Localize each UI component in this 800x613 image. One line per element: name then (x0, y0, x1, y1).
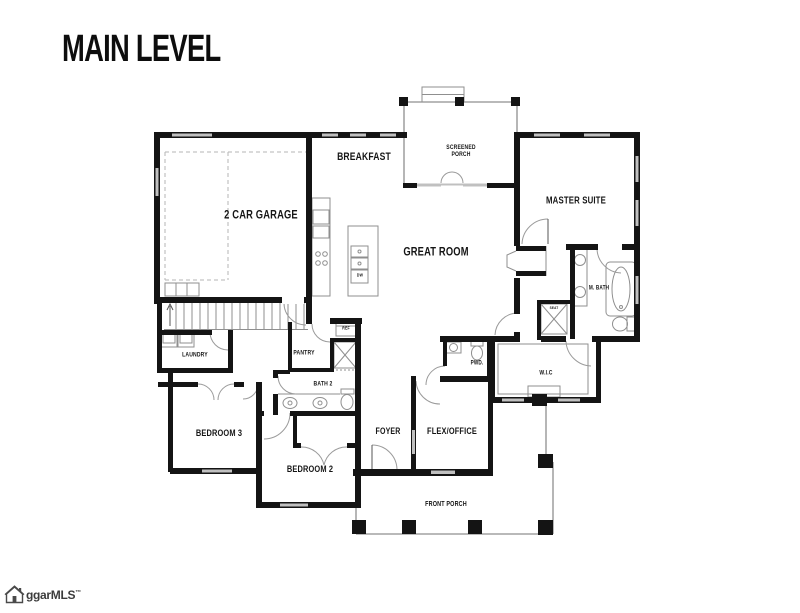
bedroom2-closet-door-right (324, 447, 347, 465)
room-label-master-bath: M. BATH (589, 286, 609, 293)
room-label-great-room: GREAT ROOM (403, 245, 468, 258)
bath2-door-swing (278, 376, 296, 394)
bath2-vanity (278, 394, 340, 409)
front-door-swing (372, 445, 397, 469)
trademark-symbol: ™ (75, 590, 81, 596)
room-label-bedroom2: BEDROOM 2 (287, 465, 333, 475)
house-icon (4, 585, 25, 604)
hall-door-swing (495, 313, 518, 335)
garage-storage (165, 283, 199, 296)
kitchen-counter (312, 198, 330, 296)
master-bath-vanity (574, 248, 587, 306)
bedroom2-door-swing (264, 413, 290, 439)
room-label-bedroom3: BEDROOM 3 (196, 429, 242, 439)
floor-plan-page: MAIN LEVEL (0, 0, 800, 613)
bath2-toilet (341, 389, 354, 410)
screened-porch-outline (404, 102, 517, 183)
powder-sink (446, 342, 461, 353)
fixture-label-shower-seat: SEAT (549, 306, 559, 310)
room-label-foyer: FOYER (376, 427, 401, 437)
room-label-master-suite: MASTER SUITE (546, 196, 606, 207)
staircase (164, 303, 308, 330)
room-label-pantry: PANTRY (293, 349, 314, 356)
master-door-swing (522, 219, 548, 244)
room-label-laundry: LAUNDRY (182, 351, 208, 358)
room-label-screened-porch: SCREENED PORCH (443, 144, 479, 158)
room-label-wic: W.I.C (539, 369, 552, 376)
garage-door-swing (284, 303, 306, 325)
room-label-breakfast: BREAKFAST (337, 151, 391, 163)
flex-door-swing (416, 381, 440, 404)
bedroom3-closet-door-left (198, 384, 214, 400)
porch-french-door-left (441, 172, 452, 183)
logo-text: ggarMLS™ (26, 588, 81, 602)
bedroom2-closet-door-left (301, 447, 324, 465)
room-label-garage: 2 CAR GARAGE (224, 208, 298, 221)
master-toilet (613, 317, 636, 331)
garage-door-gap (282, 296, 304, 304)
laundry-door-swing (210, 332, 228, 350)
bedroom3-door-swing (243, 384, 258, 399)
room-label-bath2: BATH 2 (314, 380, 333, 387)
room-label-front-porch: FRONT PORCH (425, 501, 467, 509)
room-label-powder: PWD. (471, 361, 484, 368)
bedroom3-closet-door-right (218, 384, 234, 400)
porch-french-door-right (452, 172, 463, 183)
pantry-door-swing (312, 324, 330, 342)
kitchen-island (348, 226, 378, 296)
fixture-label-refrigerator: REF (342, 327, 349, 332)
powder-door-swing (426, 366, 445, 385)
brand-logo: ggarMLS™ (4, 585, 81, 604)
bath2-shower (332, 342, 356, 370)
wic-door-swing (566, 341, 591, 366)
powder-toilet (471, 341, 483, 360)
floor-plan-drawing (0, 0, 800, 613)
thin-details (161, 87, 636, 534)
fixture-label-dishwasher: DW (356, 274, 362, 279)
room-label-flex-office: FLEX/OFFICE (427, 427, 477, 437)
